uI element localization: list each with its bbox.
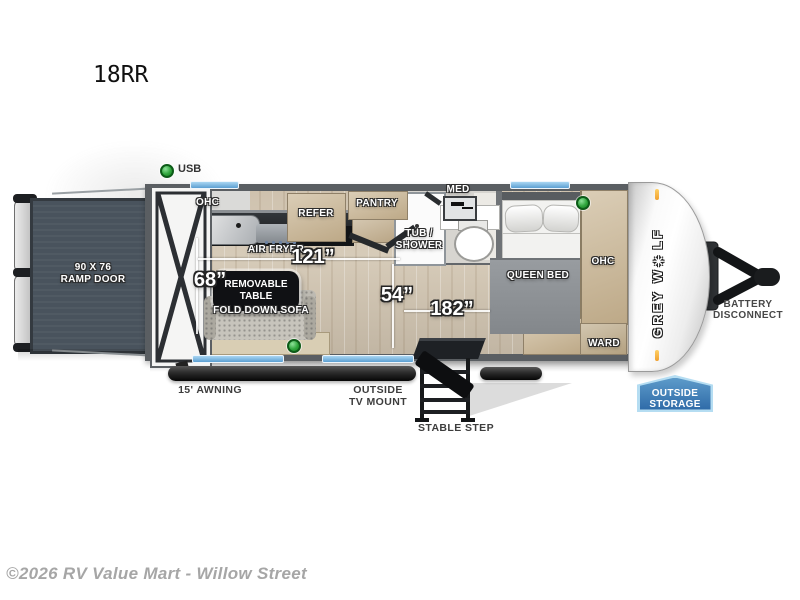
outside-storage-badge: OUTSIDE STORAGE <box>637 375 713 412</box>
stable-step-rung-3 <box>420 398 470 402</box>
ramp-door-shadow <box>18 349 156 361</box>
pantry-label: PANTRY <box>356 198 398 210</box>
bath-faucet-icon <box>451 202 464 206</box>
page-title: 18RR <box>93 62 148 88</box>
tv-mount-label-line1: OUTSIDE <box>353 384 402 396</box>
wardrobe-label: WARD <box>588 338 620 350</box>
outside-storage-label-line1: OUTSIDE <box>640 388 711 399</box>
window-strip-bottom-sofa <box>192 355 284 363</box>
med-cabinet <box>443 196 477 221</box>
usb-legend-icon <box>160 164 174 178</box>
bed-fold-crease <box>502 233 580 234</box>
underbody-tube-right <box>480 367 542 380</box>
copyright-text: ©2026 RV Value Mart - Willow Street <box>6 564 307 584</box>
window-strip-top-bedroom <box>510 181 570 189</box>
grey-wolf-logo: GREY W✳LF <box>650 213 672 353</box>
tv-mount-label-line2: TV MOUNT <box>349 396 407 408</box>
battery-disconnect-label-line2: DISCONNECT <box>713 310 783 322</box>
measurement-121: 121” <box>291 247 334 267</box>
floorplan-page: 18RR USB 90 X 76 RAMP DOOR OHC AIR FRYER <box>0 0 800 600</box>
kitchen-sink-drain <box>236 223 241 228</box>
step-shadow-wedge <box>466 383 572 417</box>
kitchen-ohc-label: OHC <box>196 197 219 209</box>
measurement-182: 182” <box>430 299 473 319</box>
usb-port-bed <box>576 196 590 210</box>
toilet-bowl <box>454 226 494 262</box>
ramp-door-label-line1: 90 X 76 <box>75 262 112 274</box>
queen-bed-label: QUEEN BED <box>507 270 569 282</box>
fold-down-sofa-label: FOLD DOWN SOFA <box>213 305 309 317</box>
bed-pillow-left <box>504 204 543 233</box>
window-strip-top-kitchen <box>190 181 239 189</box>
bedroom-ohc-label: OHC <box>591 256 614 268</box>
usb-legend-label: USB <box>178 163 201 175</box>
stable-step-label: STABLE STEP <box>418 422 494 434</box>
window-strip-bottom-entry <box>322 355 414 363</box>
stable-step-rung-4 <box>420 410 470 414</box>
tub-shower-label-line2: SHOWER <box>396 240 443 252</box>
bed-pillow-right <box>542 204 579 233</box>
tub-shower-label-line1: TUB / <box>405 228 433 240</box>
ramp-door-label-line2: RAMP DOOR <box>61 274 126 286</box>
outside-storage-badge-inner: OUTSIDE STORAGE <box>640 378 711 410</box>
usb-port-sofa <box>287 339 301 353</box>
awning-label: 15' AWNING <box>178 384 242 396</box>
marker-light-bottom <box>655 350 659 361</box>
outside-storage-label-line2: STORAGE <box>640 399 711 410</box>
med-label: MED <box>446 184 469 196</box>
measurement-54: 54” <box>381 285 413 305</box>
sofa-arm-right <box>304 296 316 340</box>
removable-table-label-line2: TABLE <box>213 291 299 303</box>
measurement-68: 68” <box>194 270 226 290</box>
measure-line-54 <box>392 264 394 348</box>
marker-light-top <box>655 189 659 200</box>
refer-label: REFER <box>298 208 333 220</box>
awning-tube <box>168 366 416 381</box>
